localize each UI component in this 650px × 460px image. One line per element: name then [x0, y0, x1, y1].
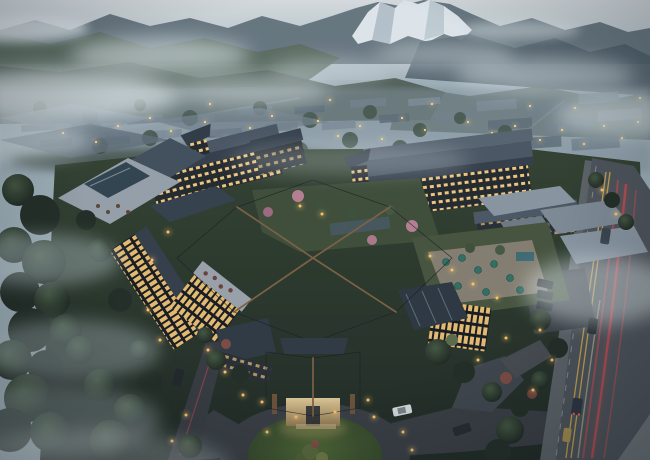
umbrella [475, 267, 482, 274]
city-light [204, 121, 206, 123]
tree [76, 210, 96, 230]
path-light [496, 297, 499, 300]
tree [20, 195, 60, 235]
path-light [147, 309, 150, 312]
fog-bank [270, 58, 390, 82]
tree [315, 201, 325, 211]
terrace-furniture [106, 210, 110, 214]
path-light [411, 449, 414, 452]
path-light [224, 371, 227, 374]
lawn-shrub-red [311, 440, 319, 448]
city-light [529, 105, 531, 107]
umbrella [443, 259, 450, 266]
city-light [249, 127, 251, 129]
tree [446, 334, 458, 346]
city-light [539, 139, 541, 141]
blossom-tree [367, 235, 377, 245]
tree [453, 361, 475, 383]
path-light [299, 205, 302, 208]
city-light [561, 129, 563, 131]
tree [138, 370, 162, 394]
blossom-tree [263, 207, 273, 217]
city-light [337, 135, 339, 137]
tree [197, 327, 213, 343]
terrace-furniture [116, 204, 120, 208]
path-light [261, 401, 264, 404]
path-light [539, 329, 542, 332]
path-light [601, 189, 604, 192]
umbrella [483, 289, 490, 296]
city-light [317, 120, 319, 122]
path-light [321, 213, 324, 216]
path-light [167, 231, 170, 234]
umbrella [517, 287, 524, 294]
fog-bank [70, 37, 250, 73]
city-light [467, 121, 469, 123]
canopy-post [272, 394, 277, 414]
city-light [424, 129, 426, 131]
path-light [367, 399, 370, 402]
path-light [185, 414, 188, 417]
umbrella [491, 261, 498, 268]
tree [511, 399, 529, 417]
path-light [207, 349, 210, 352]
terrace-furniture [96, 204, 100, 208]
path-light [151, 259, 154, 262]
path-light [429, 255, 432, 258]
red-shrub [500, 372, 512, 384]
fog-bank [455, 57, 635, 93]
entry-steps [296, 424, 336, 429]
city-light [381, 138, 383, 140]
path-light [295, 416, 298, 419]
rendering-canvas [0, 0, 650, 460]
path-light [242, 394, 245, 397]
tree [346, 208, 358, 220]
tree [465, 243, 475, 253]
city-light [359, 125, 361, 127]
tree [108, 288, 132, 312]
city-light [95, 141, 97, 143]
umbrella [455, 283, 462, 290]
canopy-post [350, 394, 355, 414]
city-light [431, 103, 433, 105]
city-light [514, 125, 516, 127]
haze [230, 144, 470, 176]
tree [495, 245, 505, 255]
umbrella [507, 275, 514, 282]
tree [604, 192, 620, 208]
city-light [117, 125, 119, 127]
tree [231, 365, 249, 383]
path-light [532, 389, 535, 392]
city-light [621, 137, 623, 139]
city-light [170, 130, 172, 132]
terrace-furniture [126, 210, 130, 214]
city-light [329, 99, 331, 101]
tree [618, 214, 634, 230]
umbrella [459, 255, 466, 262]
path-light [373, 416, 376, 419]
city-light [583, 143, 585, 145]
city-light [271, 115, 273, 117]
path-light [615, 213, 618, 216]
red-shrub [221, 339, 231, 349]
tree [548, 338, 568, 358]
path-light [334, 411, 337, 414]
plunge-pool [516, 252, 534, 261]
lower-gable [280, 338, 348, 354]
path-light [505, 337, 508, 340]
path-light [472, 283, 475, 286]
path-light [451, 269, 454, 272]
tree [482, 382, 502, 402]
tree [363, 105, 377, 119]
aerial-rendering [0, 0, 650, 460]
path-light [477, 359, 480, 362]
tree [588, 172, 604, 188]
path-light [551, 359, 554, 362]
city-light [149, 117, 151, 119]
path-light [402, 431, 405, 434]
city-light [401, 117, 403, 119]
garden-lawn [252, 178, 440, 252]
tree [531, 371, 549, 389]
cloud [460, 20, 580, 40]
tree [454, 112, 466, 124]
path-light [266, 431, 269, 434]
path-light [159, 339, 162, 342]
blossom-tree [292, 190, 304, 202]
courtyard-garden [252, 178, 440, 252]
